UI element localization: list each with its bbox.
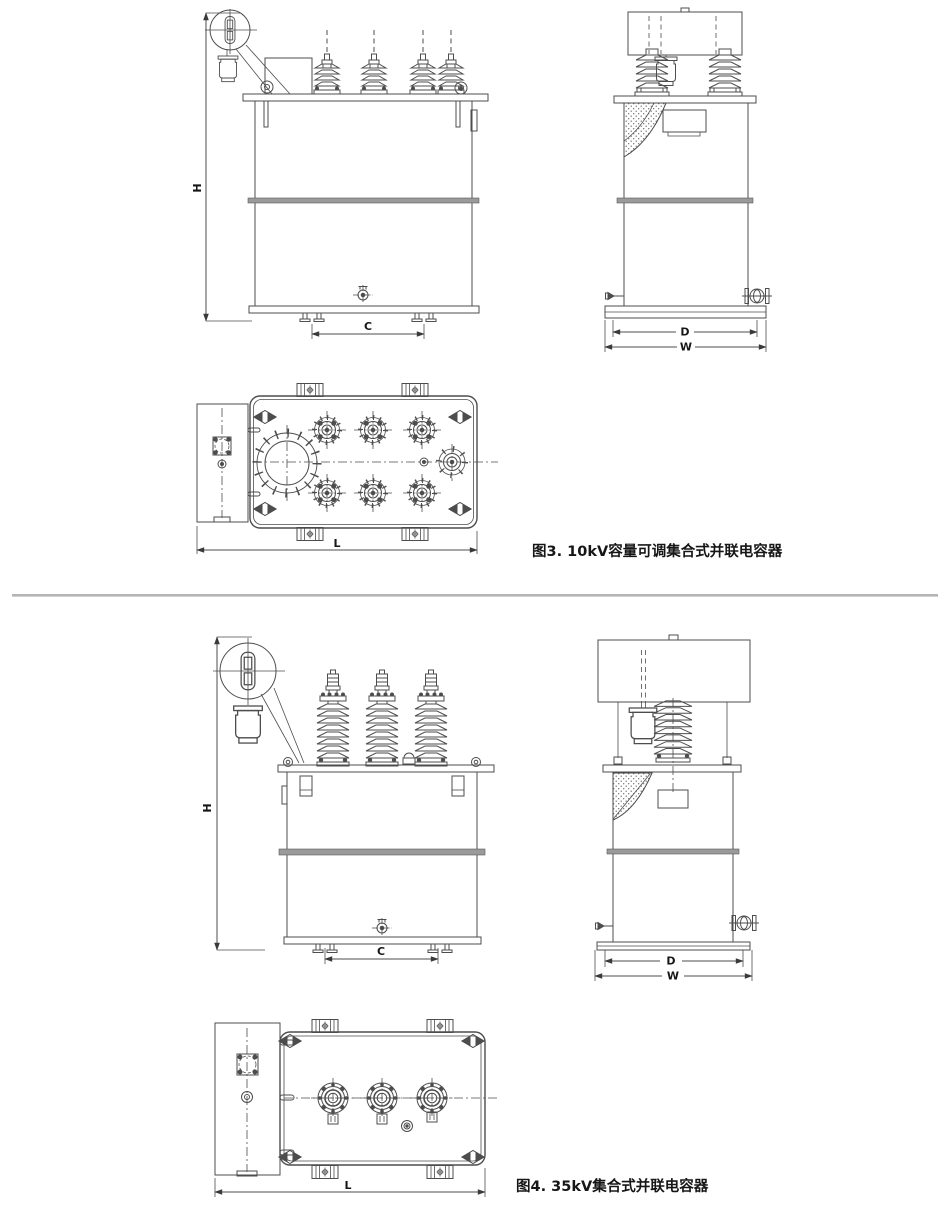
fig3-oil-gauge-detail (205, 9, 290, 94)
bushing-top (354, 411, 392, 449)
mounting-bracket (297, 384, 323, 397)
expansion-device (655, 57, 677, 86)
oil-cutaway (624, 103, 666, 157)
fig4-junction-box-top (215, 1023, 280, 1176)
fig4-oil-gauge-detail (213, 638, 304, 763)
bushing-top (403, 474, 441, 512)
base-foot (412, 313, 436, 322)
expansion-device (218, 56, 238, 82)
terminal-box (265, 58, 312, 94)
tank-band (279, 849, 485, 855)
bushing-top (354, 474, 392, 512)
bushing-10kv-side (635, 49, 669, 96)
tank-base-plate (284, 937, 481, 944)
fig3-dim-l: L (333, 537, 340, 550)
fig3-side-view (605, 8, 772, 352)
bushing-10kv (314, 30, 340, 94)
mounting-bracket (312, 1020, 338, 1033)
mounting-bracket (402, 384, 428, 397)
fig4-front-view (213, 637, 494, 964)
aux-bushing-top (439, 444, 465, 481)
bushing-10kv (410, 30, 436, 94)
fig4-dim-l: L (344, 1179, 351, 1192)
bushing-top (308, 411, 346, 449)
mounting-bracket (402, 528, 428, 541)
tank-base-plate (249, 306, 479, 313)
bushing-top (308, 474, 346, 512)
lifting-lug (254, 503, 276, 516)
manhole-cover (257, 425, 317, 501)
fig4-dim-h: H (201, 803, 214, 812)
bushing-10kv-side (708, 49, 742, 96)
bushing-10kv (361, 30, 387, 94)
fig4-top-view (215, 1020, 500, 1198)
tank-top-outline (280, 1032, 485, 1165)
fig4-dim-d: D (666, 955, 675, 968)
lifting-lug (449, 411, 471, 424)
fig3-dim-w: W (680, 341, 692, 354)
tank-band (617, 198, 753, 203)
bushing-35kv (415, 670, 447, 766)
oil-plug (403, 753, 415, 764)
fig3-tank-front (243, 30, 488, 322)
base-foot (300, 313, 324, 322)
tank-lid (603, 765, 741, 772)
fig3-front-view (205, 9, 488, 339)
tank-body (255, 101, 472, 306)
mounting-bracket (297, 528, 323, 541)
nameplate (663, 110, 706, 132)
section-divider (12, 594, 938, 597)
fig3-caption: 图3. 10kV容量可调集合式并联电容器 (532, 542, 783, 560)
technical-drawing-canvas: H C D W L 图3. 10kV容量可调集合式并联电容器 (0, 0, 950, 1214)
mounting-bracket (312, 1166, 338, 1179)
fig4-dim-c: C (377, 945, 385, 958)
lifting-lug (254, 411, 276, 424)
bushing-top (403, 411, 441, 449)
mounting-bracket (427, 1166, 453, 1179)
fig4-dim-w: W (667, 970, 679, 983)
tank-band (248, 198, 479, 203)
mounting-bracket (427, 1020, 453, 1033)
expansion-device (234, 706, 263, 743)
drain-valve (353, 285, 373, 302)
fig3-dim-c: C (364, 320, 372, 333)
oil-valve (742, 289, 772, 304)
expansion-device (629, 708, 657, 744)
fig3-dim-d: D (680, 326, 689, 339)
fig4-caption: 图4. 35kV集合式并联电容器 (516, 1177, 709, 1195)
lifting-lug (449, 503, 471, 516)
ground-terminal (402, 1121, 413, 1132)
fig3-junction-box-top (197, 404, 248, 522)
fig3-top-view (197, 384, 498, 555)
lifting-eye (261, 81, 273, 93)
bushing-cover-box (598, 640, 750, 702)
bushing-35kv (317, 670, 349, 766)
fig4-side-view (595, 635, 759, 981)
drain-valve (372, 918, 392, 935)
fig3-dim-h: H (191, 183, 204, 192)
oil-cutaway (613, 773, 652, 820)
bushing-35kv (366, 670, 398, 766)
fig4-tank-front (278, 670, 494, 953)
nameplate (658, 790, 688, 808)
tank-lid (243, 94, 488, 101)
tank-band (607, 849, 739, 854)
bushing-10kv (438, 30, 464, 94)
base-foot (428, 944, 452, 953)
catalog-page: H C D W L 图3. 10kV容量可调集合式并联电容器 (0, 0, 950, 1214)
tank-lid (614, 96, 756, 103)
